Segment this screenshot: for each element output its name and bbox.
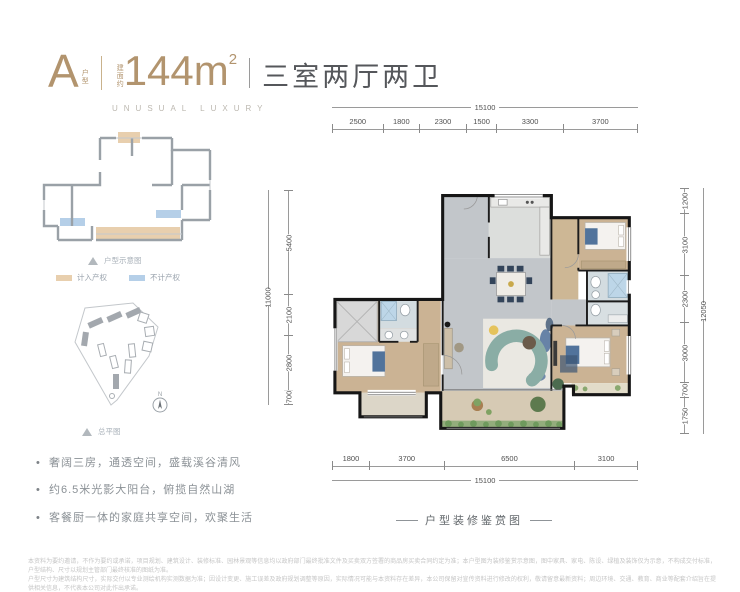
legend-item-noncounted: 不计产权 [129, 272, 180, 283]
dim-left-total: 11000 [262, 190, 274, 405]
dim-segment: 3100 [574, 461, 638, 470]
dim-chain-top: 250018002300150033003700 [332, 119, 638, 133]
site-plan-caption-text: 总平图 [98, 426, 121, 437]
dim-segment: 1800 [332, 461, 369, 470]
dim-segment: 1750 [680, 397, 689, 434]
dim-segment: 2300 [680, 275, 689, 322]
dim-value: 2100 [283, 307, 294, 324]
dim-value: 3700 [398, 454, 415, 463]
dim-segment: 1800 [383, 124, 420, 133]
disclaimer: 本资料为要约邀请，不作为要约或承诺，项目规划、建筑设计、装修标准、园林景观等信息… [28, 558, 716, 592]
dim-chain-right: 12003100230030007001750 [678, 188, 692, 434]
dim-segment: 3700 [369, 461, 444, 470]
dim-value: 6500 [501, 454, 518, 463]
floorplan-flyer: A 户型 建面约 144m2 三室两厅两卫 UNUSUAL LUXURY [0, 0, 740, 592]
dim-value: 2300 [679, 291, 690, 308]
dim-segment: 700 [680, 382, 689, 397]
dim-value: 2300 [435, 117, 452, 126]
dim-value: 1800 [393, 117, 410, 126]
feature-item: 奢阔三房，通透空间，盛载溪谷清风 [36, 456, 253, 471]
dim-value: 3100 [598, 454, 615, 463]
triangle-marker-icon [88, 257, 98, 265]
dim-chain-left: 540021002800700 [282, 190, 296, 405]
area-prefix-label: 建面约 [117, 65, 124, 89]
dim-value: 2500 [349, 117, 366, 126]
dim-bottom-total: 15100 [332, 474, 638, 486]
dim-value: 1500 [473, 117, 490, 126]
disclaimer-line: 户型尺寸为建筑结构尺寸，实际交付以专业测绘机构实测数据为准；因设计变更、施工误差… [28, 576, 716, 592]
dim-chain-bottom: 1800370065003100 [332, 456, 638, 470]
noncounted-swatch [129, 275, 145, 281]
area-superscript: 2 [229, 52, 237, 67]
dim-segment: 2500 [332, 124, 383, 133]
mini-balcony-area [96, 227, 180, 239]
area-value: 144m2 [124, 50, 237, 92]
mini-noncounted-area-right [156, 210, 181, 218]
compass-n-label: N [158, 392, 162, 398]
plan-caption-text: 户型装修鉴赏图 [425, 512, 523, 528]
dim-segment: 2100 [284, 294, 293, 335]
unit-type-label: 户型 [82, 70, 89, 86]
dim-segment: 700 [284, 390, 293, 405]
dim-segment: 1200 [680, 188, 689, 213]
dim-segment: 2300 [419, 124, 466, 133]
dim-value: 3300 [522, 117, 539, 126]
dim-value: 700 [283, 391, 294, 404]
site-plan: N [55, 300, 185, 420]
dim-value: 5400 [283, 234, 294, 251]
dim-value: 1750 [679, 407, 690, 424]
counted-swatch [56, 275, 72, 281]
plan-caption: 户型装修鉴赏图 [396, 512, 546, 528]
dim-segment: 3100 [680, 213, 689, 275]
legend: 计入产权 不计产权 [56, 272, 180, 283]
site-plan-caption: 总平图 [82, 426, 121, 437]
dim-segment: 3700 [563, 124, 638, 133]
dim-value: 3000 [679, 344, 690, 361]
dim-value: 700 [679, 384, 690, 397]
mini-plan-caption-text: 户型示意图 [104, 255, 142, 266]
plant [552, 378, 564, 390]
dim-segment: 6500 [444, 461, 575, 470]
dim-segment: 1500 [466, 124, 497, 133]
rooms-label: 三室两厅两卫 [262, 55, 442, 94]
site-buildings-outline [98, 312, 155, 399]
dim-segment: 3000 [680, 322, 689, 383]
header-divider [101, 56, 102, 90]
subtitle: UNUSUAL LUXURY [112, 104, 268, 113]
feature-item: 约6.5米光影大阳台，俯揽自然山湖 [36, 483, 253, 498]
dim-right-total: 12050 [697, 188, 709, 434]
header-divider-2 [249, 58, 250, 88]
dim-value: 1200 [679, 193, 690, 210]
counted-label: 计入产权 [77, 272, 107, 283]
unit-type-letter: A [48, 48, 79, 94]
dim-segment: 5400 [284, 190, 293, 294]
dim-value: 1800 [343, 454, 360, 463]
main-floor-plan [332, 184, 638, 438]
dim-top-total: 15100 [332, 101, 638, 113]
noncounted-label: 不计产权 [150, 272, 180, 283]
disclaimer-line: 本资料为要约邀请，不作为要约或承诺，项目规划、建筑设计、装修标准、园林景观等信息… [28, 558, 716, 576]
compass-icon: N [153, 392, 167, 412]
dim-value: 3700 [592, 117, 609, 126]
header: A 户型 建面约 144m2 三室两厅两卫 [48, 48, 442, 94]
mini-plan-caption: 户型示意图 [88, 255, 142, 266]
dim-segment: 2800 [284, 335, 293, 389]
dim-value: 2800 [283, 355, 294, 372]
feature-item: 客餐厨一体的家庭共享空间，欢聚生活 [36, 511, 253, 526]
feature-list: 奢阔三房，通透空间，盛载溪谷清风约6.5米光影大阳台，俯揽自然山湖客餐厨一体的家… [36, 456, 253, 538]
triangle-marker-icon [82, 428, 92, 436]
dim-segment: 3300 [496, 124, 562, 133]
dim-value: 3100 [679, 236, 690, 253]
legend-item-counted: 计入产权 [56, 272, 107, 283]
mini-floor-plan [30, 130, 235, 258]
